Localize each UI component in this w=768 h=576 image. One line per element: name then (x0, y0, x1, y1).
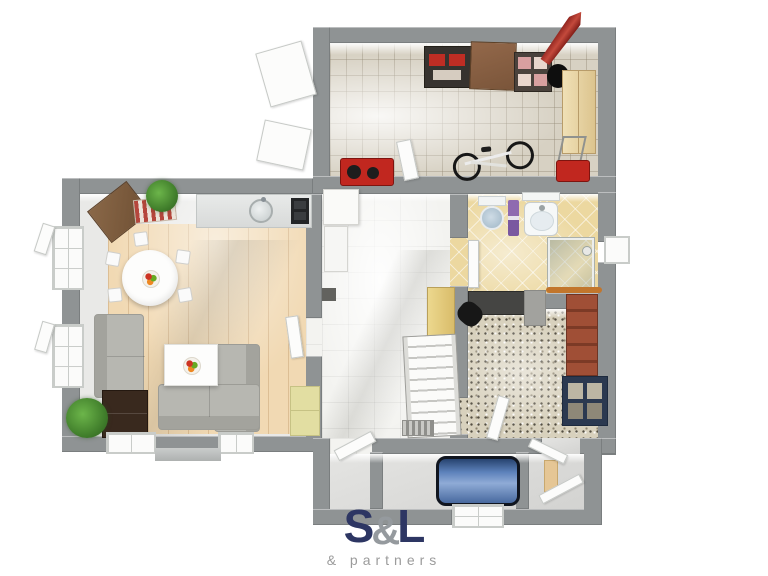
red-storage-box (429, 54, 445, 66)
dining-chair (177, 287, 193, 303)
patio-step (155, 448, 221, 461)
storage-right-wall (598, 27, 616, 192)
shower-head (582, 246, 592, 256)
yellow-cabinet (290, 386, 320, 436)
navy-cabinet (562, 376, 608, 426)
white-fridge-cabinet (323, 189, 359, 225)
lawnmower-body (556, 160, 590, 182)
floor-plan-render: { "brand": { "logo_s": "S", "logo_amp": … (0, 0, 768, 576)
dining-chair (105, 251, 121, 267)
cabinet-shelf-box (587, 383, 602, 399)
dark-shelving-unit (424, 46, 472, 88)
dark-dresser (102, 390, 148, 438)
storage-exterior-door-lower (256, 119, 312, 170)
fruit-plate (183, 357, 201, 375)
dining-chair (175, 249, 191, 265)
basin-bowl (530, 211, 554, 231)
fruit-bowl (142, 270, 160, 288)
dining-table (122, 250, 178, 306)
cabinet-shelf-box (568, 403, 583, 419)
bicycle (450, 130, 538, 185)
floor-grate (402, 420, 434, 436)
cabinet-shelf-box (568, 383, 583, 399)
gray-armchair (94, 314, 144, 398)
living-left-window-upper (52, 226, 84, 290)
brand-ampersand-icon: & (371, 509, 399, 553)
mirror-shelf (522, 192, 560, 201)
window-panes (108, 434, 154, 452)
toilet-tank (478, 196, 506, 206)
generator-motor (367, 167, 379, 179)
living-top-wall (62, 178, 313, 194)
beige-storage-box (433, 70, 461, 80)
storage-left-wall (313, 27, 330, 192)
sofa-seam (209, 385, 210, 417)
red-storage-box (449, 54, 465, 66)
generator-motor (347, 165, 361, 179)
living-bottom-window-right (218, 432, 254, 454)
red-lawnmower (552, 136, 592, 184)
bicycle-saddle (481, 146, 491, 152)
red-generator (340, 158, 394, 186)
bathroom-door (468, 240, 479, 288)
cooktop-burner (294, 212, 306, 220)
blue-sofa (436, 456, 520, 506)
brand-letter-l: L (397, 500, 424, 552)
brand-logo: S&L & partners (0, 503, 768, 568)
bicycle-front-wheel (505, 140, 536, 171)
white-tall-cabinet (324, 226, 348, 272)
kitchen-sink (249, 199, 273, 223)
purple-towel-rail (508, 200, 519, 236)
dresser-drawer-line (103, 413, 147, 414)
kitchen-counter (196, 194, 312, 228)
bathroom-door-opening (450, 238, 468, 286)
kitchen-faucet (261, 197, 266, 202)
dining-chair (133, 231, 149, 247)
brand-tagline: & partners (0, 552, 768, 568)
toilet (478, 196, 506, 232)
armchair-seam (107, 356, 145, 357)
right-outer-wall-upper (598, 192, 616, 242)
fern-plant (146, 180, 178, 212)
dining-chair (107, 287, 122, 302)
coffee-table (164, 344, 218, 386)
brand-letter-s: S (344, 500, 374, 552)
hallway-right-wall-upper (450, 194, 468, 238)
window-panes (220, 434, 252, 452)
pink-box (518, 74, 531, 86)
living-bottom-window-left (106, 432, 156, 454)
pink-box (518, 57, 531, 69)
curtain-rail (546, 287, 602, 293)
yellow-cabinet-seam (291, 410, 319, 411)
bicycle-rear-wheel (451, 152, 482, 183)
window-panes (54, 326, 82, 386)
washbasin (524, 202, 558, 236)
storage-exterior-door-upper (255, 40, 317, 107)
gray-panel (524, 290, 546, 326)
living-hallway-opening (306, 318, 322, 356)
cooktop (291, 198, 309, 224)
lawnmower-handle (557, 136, 587, 162)
living-left-window-lower (52, 324, 84, 388)
pink-box (534, 74, 547, 86)
brick-bookshelf (566, 294, 598, 376)
window-panes (54, 228, 82, 288)
glass-shower (548, 238, 594, 290)
bathroom-right-window-sill (604, 236, 630, 264)
wooden-cabinet (469, 41, 517, 91)
wall-panel (322, 288, 336, 301)
green-plant (66, 398, 108, 438)
wooden-wall-shelf (427, 287, 455, 337)
toilet-bowl (480, 206, 504, 230)
cooktop-burner (294, 201, 306, 209)
brand-logo-wordmark: S&L (0, 503, 768, 549)
corner-sofa-horizontal (158, 384, 260, 430)
basin-faucet (539, 205, 545, 211)
cabinet-shelf-box (587, 403, 602, 419)
